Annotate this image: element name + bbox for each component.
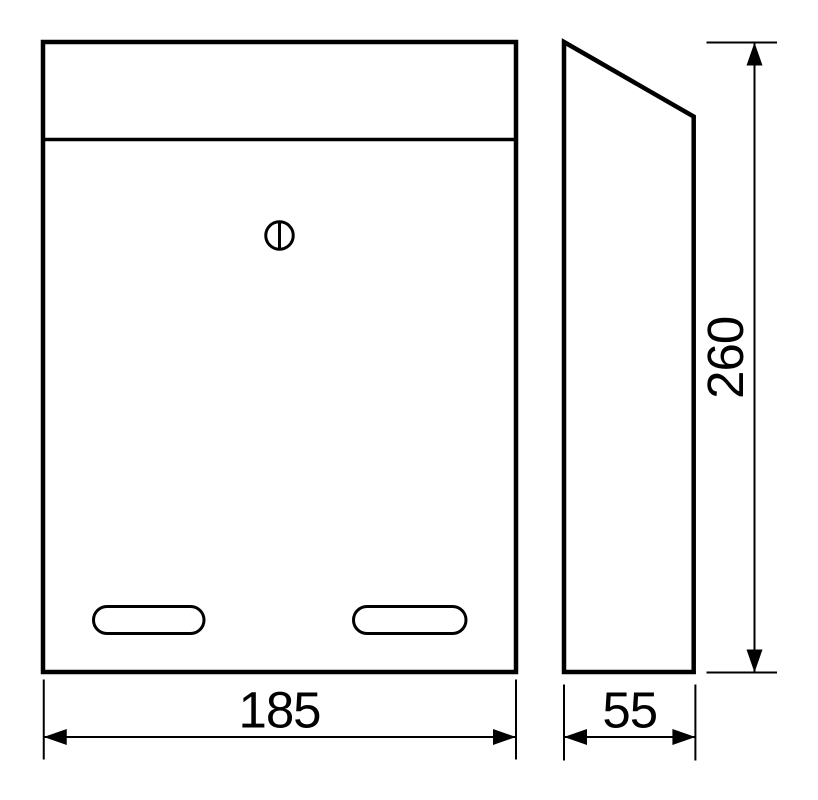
svg-text:55: 55 <box>602 681 657 738</box>
svg-text:185: 185 <box>238 681 320 738</box>
svg-text:260: 260 <box>697 317 754 399</box>
